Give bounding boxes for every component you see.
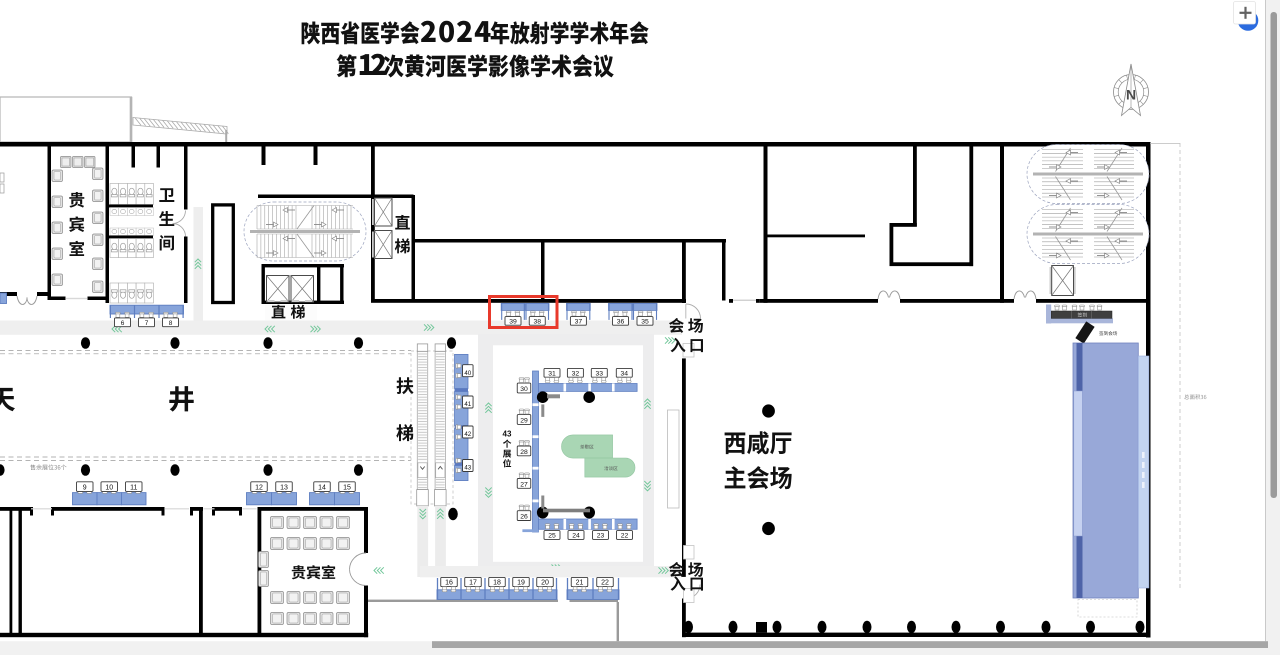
svg-text:28: 28	[520, 449, 528, 456]
svg-text:43: 43	[503, 430, 512, 439]
svg-text:36: 36	[617, 318, 625, 325]
svg-text:39: 39	[509, 318, 517, 325]
svg-text:11: 11	[130, 485, 137, 492]
svg-text:22: 22	[621, 533, 629, 540]
svg-text:23: 23	[597, 533, 605, 540]
svg-text:N: N	[1126, 87, 1136, 103]
svg-text:8: 8	[169, 320, 173, 327]
svg-text:34: 34	[621, 370, 629, 377]
svg-text:22: 22	[601, 580, 609, 587]
svg-text:19: 19	[517, 580, 525, 587]
svg-text:32: 32	[572, 370, 580, 377]
svg-text:33: 33	[596, 370, 604, 377]
svg-text:30: 30	[520, 386, 528, 393]
svg-text:38: 38	[533, 318, 541, 325]
svg-text:26: 26	[520, 514, 528, 521]
svg-text:6: 6	[121, 320, 125, 327]
svg-text:25: 25	[548, 533, 556, 540]
svg-text:29: 29	[520, 418, 528, 425]
svg-text:9: 9	[83, 485, 87, 492]
svg-text:10: 10	[105, 485, 113, 492]
svg-text:17: 17	[469, 580, 477, 587]
svg-text:16: 16	[445, 580, 453, 587]
svg-text:37: 37	[575, 318, 583, 325]
svg-text:41: 41	[464, 401, 471, 408]
svg-text:20: 20	[541, 580, 549, 587]
svg-text:7: 7	[145, 320, 149, 327]
svg-text:43: 43	[464, 465, 471, 472]
svg-text:18: 18	[493, 580, 501, 587]
svg-text:14: 14	[318, 485, 326, 492]
svg-text:21: 21	[576, 580, 584, 587]
svg-text:42: 42	[464, 431, 471, 438]
svg-text:40: 40	[464, 370, 471, 377]
svg-text:24: 24	[572, 533, 580, 540]
svg-text:27: 27	[520, 481, 528, 488]
svg-text:15: 15	[343, 485, 351, 492]
svg-text:35: 35	[641, 318, 649, 325]
svg-text:13: 13	[280, 485, 288, 492]
svg-text:12: 12	[255, 485, 263, 492]
svg-text:31: 31	[548, 370, 556, 377]
